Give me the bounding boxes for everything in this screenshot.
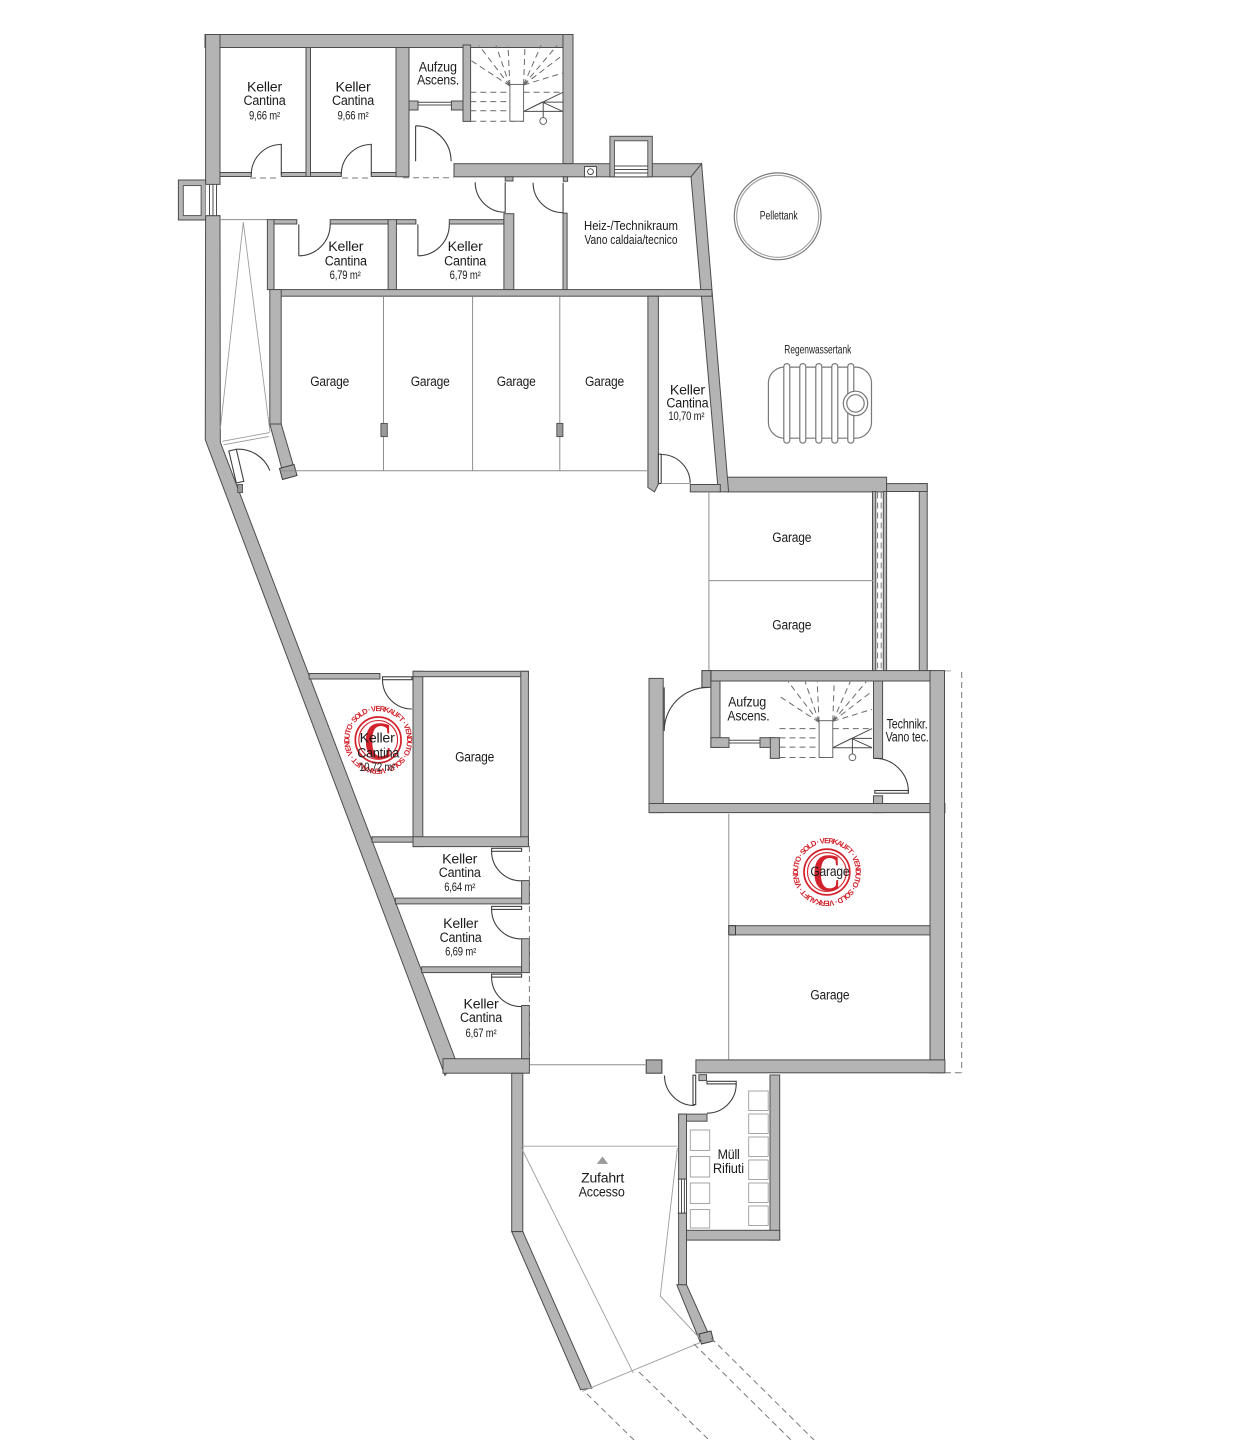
svg-text:Vano caldaia/tecnico: Vano caldaia/tecnico	[585, 233, 678, 247]
svg-text:Ascens.: Ascens.	[727, 708, 769, 723]
svg-text:Cantina: Cantina	[440, 930, 483, 945]
svg-text:Ascens.: Ascens.	[417, 73, 459, 88]
svg-text:6,79 m²: 6,79 m²	[450, 270, 481, 282]
svg-text:Cantina: Cantina	[325, 253, 368, 268]
svg-text:Cantina: Cantina	[460, 1010, 503, 1025]
svg-text:Garage: Garage	[455, 750, 494, 765]
svg-text:Garage: Garage	[810, 864, 849, 879]
svg-text:6,79 m²: 6,79 m²	[330, 270, 361, 282]
svg-text:Cantina: Cantina	[357, 746, 400, 761]
svg-text:Garage: Garage	[411, 374, 450, 389]
svg-text:Rifiuti: Rifiuti	[713, 1161, 744, 1176]
svg-text:Pellettank: Pellettank	[760, 210, 798, 222]
svg-text:6,64 m²: 6,64 m²	[444, 882, 475, 894]
svg-text:6,69 m²: 6,69 m²	[445, 947, 476, 959]
svg-text:Heiz-/Technikraum: Heiz-/Technikraum	[584, 219, 678, 233]
svg-text:Garage: Garage	[585, 374, 624, 389]
svg-text:Cantina: Cantina	[332, 93, 375, 108]
svg-text:Garage: Garage	[810, 988, 849, 1003]
svg-text:Garage: Garage	[310, 374, 349, 389]
svg-text:Vano tec.: Vano tec.	[886, 730, 929, 745]
svg-text:Garage: Garage	[497, 374, 536, 389]
svg-text:Cantina: Cantina	[439, 865, 482, 880]
svg-text:Müll: Müll	[718, 1147, 740, 1162]
svg-text:6,67 m²: 6,67 m²	[466, 1028, 497, 1040]
svg-text:Cantina: Cantina	[666, 396, 709, 411]
svg-text:Garage: Garage	[772, 530, 811, 545]
svg-text:Cantina: Cantina	[444, 253, 487, 268]
svg-text:10,70 m²: 10,70 m²	[668, 411, 704, 423]
svg-text:Keller: Keller	[448, 239, 484, 254]
svg-text:10,72 m²: 10,72 m²	[359, 762, 395, 774]
svg-text:9,66 m²: 9,66 m²	[249, 110, 280, 122]
svg-text:Keller: Keller	[328, 239, 364, 254]
svg-text:Garage: Garage	[772, 618, 811, 633]
svg-text:Keller: Keller	[360, 731, 396, 746]
svg-text:Cantina: Cantina	[244, 93, 287, 108]
svg-text:Accesso: Accesso	[579, 1184, 625, 1199]
svg-text:9,66 m²: 9,66 m²	[338, 110, 369, 122]
svg-text:Regenwassertank: Regenwassertank	[784, 345, 851, 357]
